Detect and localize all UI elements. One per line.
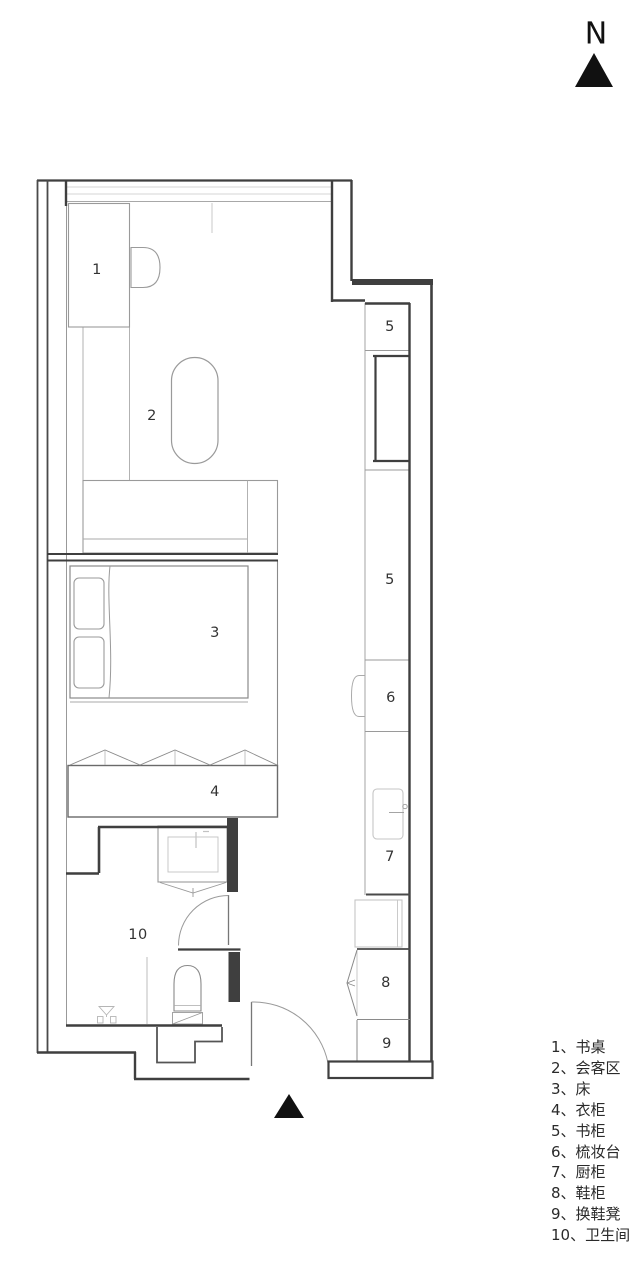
label-lounge: 2 bbox=[147, 408, 157, 424]
duvet-edge bbox=[109, 566, 111, 698]
coffee-table bbox=[172, 358, 219, 464]
north-letter: N bbox=[585, 17, 607, 52]
shower-handle-left bbox=[98, 1017, 104, 1024]
north-arrow-icon bbox=[575, 53, 613, 87]
legend-item-bathroom: 10、卫生间 bbox=[551, 1225, 630, 1246]
legend-item-wardrobe: 4、衣柜 bbox=[551, 1100, 630, 1121]
label-dresser: 6 bbox=[386, 690, 396, 706]
bed-partition-wall bbox=[47, 554, 278, 561]
pillow-1 bbox=[74, 578, 104, 629]
bathroom-fixtures bbox=[98, 826, 228, 1024]
dresser-stool bbox=[352, 676, 366, 717]
label-bed: 3 bbox=[210, 625, 220, 641]
bed bbox=[70, 566, 248, 698]
south-east-wall bbox=[329, 1062, 433, 1079]
label-kitchen: 7 bbox=[385, 849, 395, 865]
label-bookcase-top: 5 bbox=[385, 319, 395, 335]
label-bookcase-main: 5 bbox=[385, 572, 395, 588]
floor-plan-page: N 1 2 3 4 5 5 6 7 8 9 10 1、书桌 2、会客区 3、床 … bbox=[0, 0, 640, 1274]
basin-cabinet-doors bbox=[160, 883, 226, 898]
legend-item-bed: 3、床 bbox=[551, 1079, 630, 1100]
sofa-inner-lines bbox=[83, 481, 248, 554]
pillow-2 bbox=[74, 637, 104, 688]
wall-niche bbox=[373, 355, 410, 462]
legend-item-shoe-stool: 9、换鞋凳 bbox=[551, 1204, 630, 1225]
entry-step bbox=[157, 1027, 222, 1063]
toilet-bowl bbox=[174, 966, 201, 1012]
label-desk: 1 bbox=[92, 262, 102, 278]
legend-item-shoe-cabinet: 8、鞋柜 bbox=[551, 1183, 630, 1204]
floor-plan-drawing bbox=[0, 0, 640, 1274]
toilet-cistern-diagonal bbox=[173, 1013, 203, 1025]
bathroom-wall-stub-upper bbox=[227, 818, 238, 892]
shower-handle-right bbox=[111, 1017, 117, 1024]
sofa bbox=[83, 481, 278, 554]
legend-item-desk: 1、书桌 bbox=[551, 1037, 630, 1058]
fridge bbox=[355, 900, 402, 947]
wardrobe-door-zigzag bbox=[70, 750, 277, 765]
washbasin-bowl bbox=[168, 837, 218, 872]
entry-door-swing bbox=[252, 1002, 329, 1063]
label-bathroom: 10 bbox=[128, 927, 147, 943]
desk-chair bbox=[131, 248, 160, 288]
legend: 1、书桌 2、会客区 3、床 4、衣柜 5、书柜 6、梳妆台 7、厨柜 8、鞋柜… bbox=[551, 1037, 630, 1246]
furniture-layer bbox=[68, 203, 278, 817]
label-shoe-stool: 9 bbox=[382, 1036, 392, 1052]
label-shoe-cabinet: 8 bbox=[381, 975, 391, 991]
kitchen-sink bbox=[373, 789, 403, 839]
wardrobe bbox=[68, 766, 278, 818]
shoe-cabinet-door-arrow bbox=[347, 980, 355, 986]
legend-item-lounge: 2、会客区 bbox=[551, 1058, 630, 1079]
cabinet-column bbox=[347, 303, 410, 1061]
window-glazing-lines bbox=[66, 187, 331, 194]
south-west-wall bbox=[37, 1052, 250, 1079]
legend-item-bookcase: 5、书柜 bbox=[551, 1121, 630, 1142]
label-wardrobe: 4 bbox=[210, 784, 220, 800]
counter-strip bbox=[83, 328, 130, 481]
bathroom-wall-stub-lower bbox=[229, 952, 241, 1002]
legend-item-kitchen: 7、厨柜 bbox=[551, 1162, 630, 1183]
legend-item-dresser: 6、梳妆台 bbox=[551, 1142, 630, 1163]
shoe-cabinet-door-bracket bbox=[347, 950, 357, 1016]
cabinet-dividers bbox=[365, 351, 410, 732]
west-wall-outer bbox=[38, 180, 48, 1053]
entry-arrow bbox=[274, 1094, 304, 1118]
east-wall-return bbox=[352, 279, 433, 285]
shower-mixer-funnel bbox=[99, 1007, 114, 1018]
basin-faucet bbox=[196, 832, 209, 849]
wardrobe-door-ticks bbox=[105, 750, 245, 765]
bathroom-door-swing bbox=[179, 896, 229, 946]
